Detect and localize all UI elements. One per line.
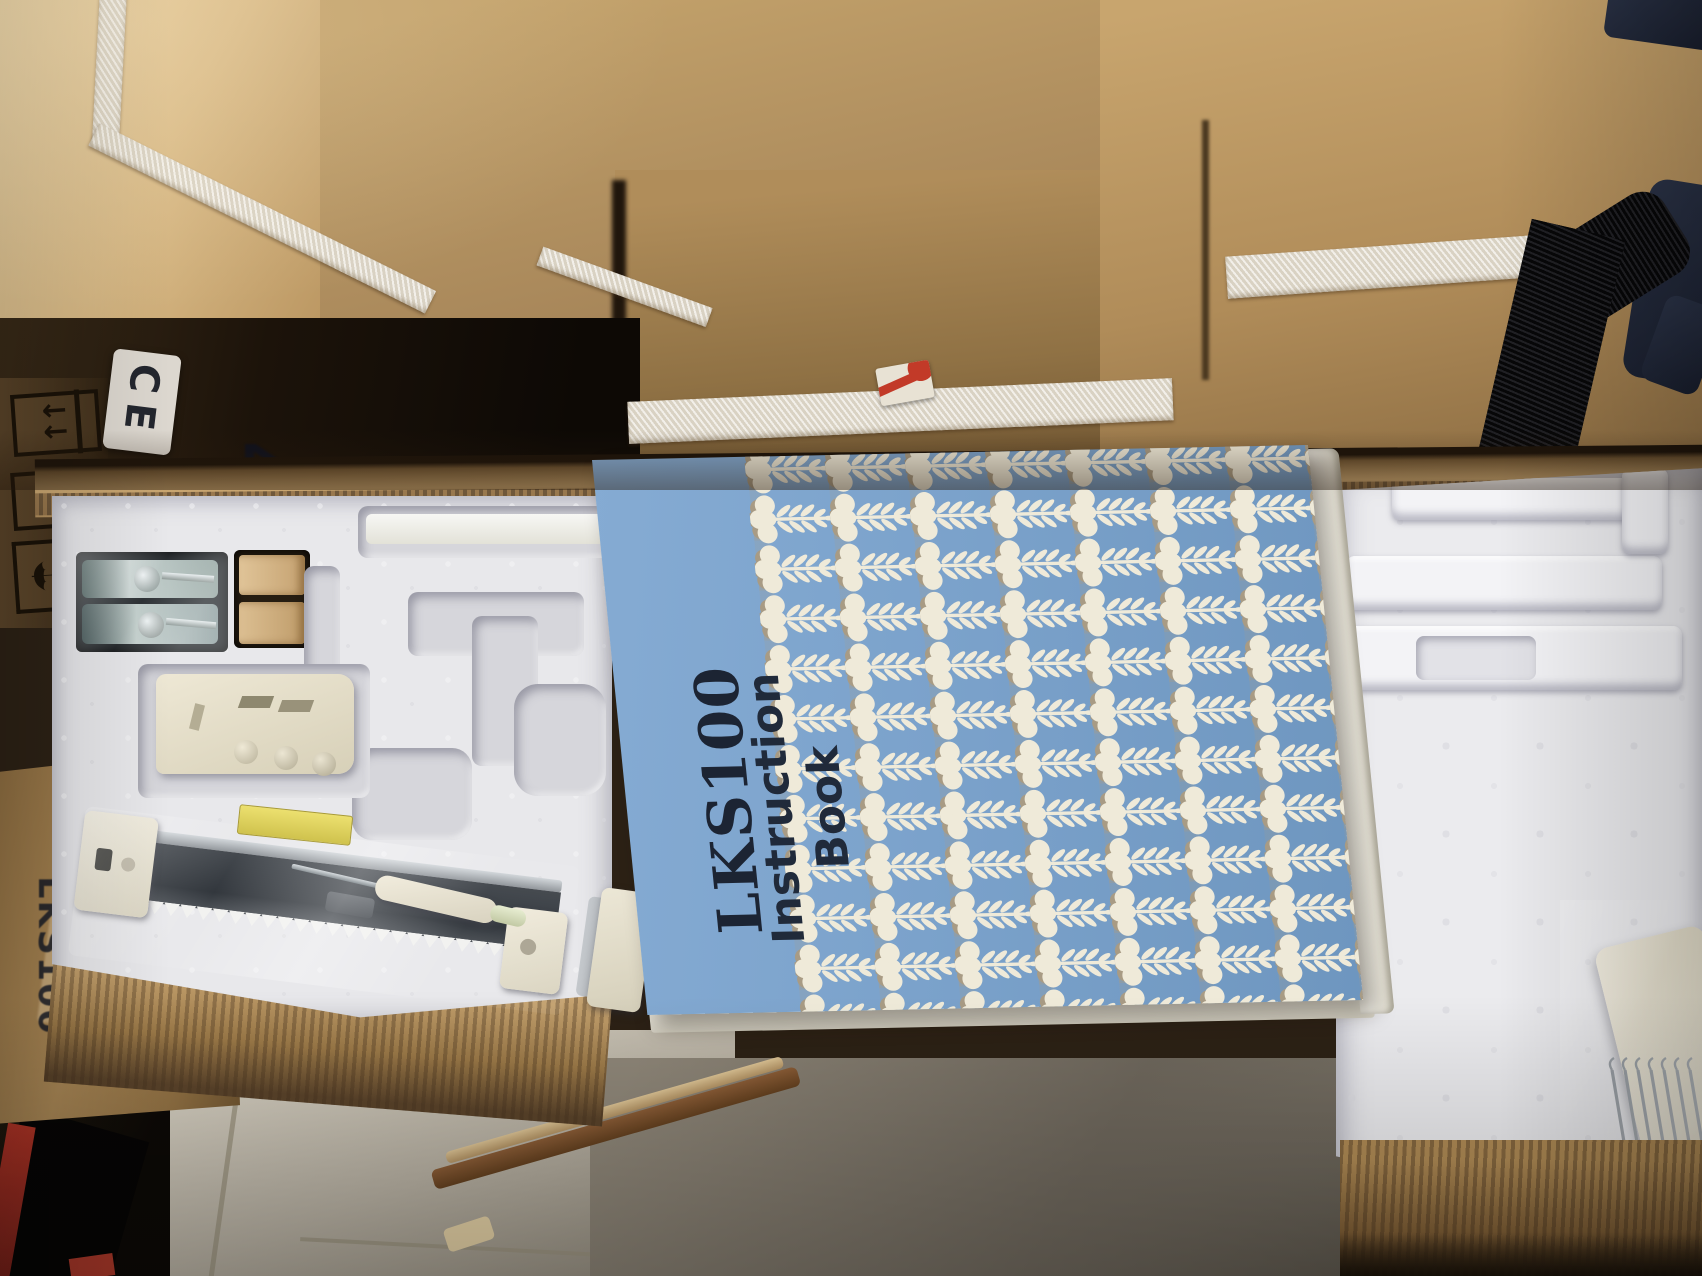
latch-needles (1606, 1044, 1702, 1276)
pattern-column-shadow (1066, 450, 1136, 1005)
flower-motif (1357, 978, 1363, 1015)
counter-lever (189, 703, 205, 731)
flower-motif (1267, 880, 1358, 936)
cap-slot (94, 848, 113, 872)
flower-motif (1302, 445, 1363, 485)
wood-stick-highlight (445, 1056, 785, 1164)
flower-motif (1157, 582, 1248, 638)
flower-motif (1192, 932, 1283, 988)
bed-end-cap-left (73, 810, 159, 918)
flower-motif (1237, 581, 1328, 637)
flower-motif (1032, 935, 1123, 991)
dark-object (0, 1107, 149, 1276)
flower-motif (762, 641, 853, 697)
flower-motif (767, 691, 858, 747)
flower-motif (743, 445, 834, 497)
book-cover: LKS100 Instruction Book (592, 445, 1363, 1015)
book-subtitle: Instruction Book (732, 616, 822, 1000)
flower-motif (903, 445, 994, 493)
flower-motif (842, 639, 933, 695)
flower-motif (1142, 445, 1233, 488)
flower-motif (772, 740, 863, 796)
tile-grout-line (300, 1237, 640, 1259)
warehouse-photo: ↑↑ ♣ ☂ CE 40 LKS100 (0, 0, 1702, 1276)
flower-motif (1177, 782, 1268, 838)
flower-motif (857, 789, 948, 845)
foam-ridge (1392, 478, 1650, 520)
flower-motif (1072, 534, 1163, 590)
pattern-column-shadow (1146, 448, 1216, 1003)
flower-motif (1347, 878, 1363, 934)
black-strap-loop (1532, 182, 1699, 334)
flower-motif (997, 586, 1088, 642)
tool-metal-shaft (291, 864, 382, 890)
flower-motif (782, 840, 873, 896)
floor-in-shadow (590, 1058, 1400, 1276)
sponge-bar-compartment (234, 550, 310, 648)
flower-motif (792, 940, 883, 996)
flower-motif (828, 489, 919, 545)
background-carton-underside (320, 0, 1300, 480)
flower-motif (1147, 483, 1238, 539)
flower-motif (1272, 930, 1363, 986)
ce-mark-label: CE (102, 348, 182, 456)
clamp-compartment (76, 552, 228, 652)
foam-recess-keyhole (514, 684, 606, 796)
shipping-sticker (875, 360, 935, 407)
flower-motif (1332, 729, 1363, 785)
flower-motif (992, 536, 1083, 592)
flower-motif (1017, 785, 1108, 841)
this-way-up-icon: ↑↑ (10, 389, 102, 457)
flower-motif (823, 445, 914, 495)
flower-motif (1027, 885, 1118, 941)
ce-mark-text: CE (113, 342, 171, 462)
instruction-book: LKS100 Instruction Book (592, 444, 1410, 1045)
flower-motif (957, 987, 1048, 1015)
flower-motif (1342, 829, 1363, 885)
red-object-edge (0, 1123, 36, 1276)
flower-motif (1277, 980, 1363, 1015)
flower-motif (777, 790, 868, 846)
flower-motif (1337, 779, 1363, 835)
white-strap-horizontal (627, 378, 1173, 444)
tool-tip (489, 904, 528, 929)
knob (312, 752, 336, 776)
pattern-column-shadow (746, 456, 816, 1011)
flower-motif (1112, 933, 1203, 989)
background-carton-right (1100, 0, 1702, 500)
flower-motif (1152, 532, 1243, 588)
flower-motif (1007, 686, 1098, 742)
knob (274, 746, 298, 770)
sponge-bar (239, 602, 305, 644)
flower-motif (1317, 579, 1363, 635)
white-strap-diagonal (88, 123, 436, 313)
carriage-compartment (138, 664, 370, 798)
flower-motif (1232, 531, 1323, 587)
flower-motif (1092, 734, 1183, 790)
flower-motif (1102, 834, 1193, 890)
flower-motif (753, 541, 844, 597)
flower-motif (983, 445, 1074, 492)
flower-motif (988, 486, 1079, 542)
plastic-bag-sheen (76, 552, 228, 652)
flower-motif (1322, 629, 1363, 685)
pattern-column-shadow (1306, 445, 1363, 1000)
foam-channel (1346, 626, 1682, 690)
book-title: LKS100 (677, 640, 781, 961)
flower-motif (952, 937, 1043, 993)
flower-motif (867, 889, 958, 945)
flower-motif (1087, 684, 1178, 740)
flower-motif (1063, 445, 1154, 490)
flower-motif (932, 737, 1023, 793)
flower-motif (1227, 481, 1318, 537)
flower-motif (1082, 634, 1173, 690)
cap-dot (120, 857, 136, 873)
carton-seam (612, 180, 626, 500)
pattern-column-shadow (826, 455, 896, 1010)
foam-channel (1346, 556, 1662, 610)
flower-motif (1117, 983, 1208, 1015)
flower-motif (1352, 928, 1363, 984)
background-carton-left-face (0, 0, 670, 500)
counter-slot (278, 700, 314, 712)
flower-motif (1012, 735, 1103, 791)
flower-motif (1097, 784, 1188, 840)
flower-motif (917, 587, 1008, 643)
knob (234, 740, 258, 764)
flower-motif (1077, 584, 1168, 640)
flower-motif (1327, 679, 1363, 735)
flower-motif (1312, 529, 1363, 585)
flower-motif (847, 689, 938, 745)
foam-groove (1622, 468, 1668, 554)
counter-slot (238, 696, 274, 708)
flower-motif (1197, 982, 1288, 1015)
white-strap-vertical (92, 0, 127, 143)
flower-motif (908, 488, 999, 544)
flower-motif (1187, 882, 1278, 938)
flower-motif (1172, 732, 1263, 788)
navy-bag (1621, 177, 1702, 387)
pattern-column-shadow (906, 453, 976, 1008)
flower-motif (937, 787, 1028, 843)
flower-motif (1257, 780, 1348, 836)
flower-motif (1022, 835, 1113, 891)
flower-motif (1067, 484, 1158, 540)
flower-pattern (740, 445, 1363, 1012)
red-fragment (69, 1253, 116, 1276)
flower-motif (1262, 830, 1353, 886)
channel-notch (1416, 636, 1536, 680)
flower-motif (1242, 631, 1333, 687)
flower-motif (1002, 636, 1093, 692)
flower-motif (912, 538, 1003, 594)
white-strap-diagonal (537, 247, 713, 327)
flower-motif (872, 938, 963, 994)
flower-motif (922, 637, 1013, 693)
carton-seam (1202, 120, 1209, 380)
flower-motif (927, 687, 1018, 743)
flower-motif (1037, 985, 1128, 1015)
row-counter-unit (156, 674, 354, 774)
flower-motif (942, 837, 1033, 893)
flower-motif (748, 491, 839, 547)
foam-recess (352, 748, 472, 840)
pattern-column-shadow (1226, 446, 1296, 1001)
wood-stick (430, 1066, 801, 1190)
flower-motif (1307, 479, 1363, 535)
flower-motif (947, 887, 1038, 943)
flower-motif (797, 990, 888, 1015)
flower-motif (787, 890, 878, 946)
wood-stick-end (442, 1215, 495, 1253)
flower-motif (833, 539, 924, 595)
navy-bag (1603, 0, 1702, 51)
strap-buckle (1638, 292, 1702, 397)
flower-motif (758, 591, 849, 647)
flower-motif (1182, 832, 1273, 888)
flower-motif (1222, 445, 1313, 487)
flower-motif (837, 589, 928, 645)
white-strap-horizontal (1225, 223, 1702, 298)
flower-motif (1107, 883, 1198, 939)
flower-motif (1252, 730, 1343, 786)
flower-motif (862, 839, 953, 895)
flower-motif (1167, 682, 1258, 738)
flower-motif (1247, 681, 1338, 737)
flower-motif (852, 739, 943, 795)
sponge-bar (239, 555, 305, 595)
flower-motif (1162, 632, 1253, 688)
pattern-column-shadow (986, 451, 1056, 1006)
flower-motif (877, 988, 968, 1015)
